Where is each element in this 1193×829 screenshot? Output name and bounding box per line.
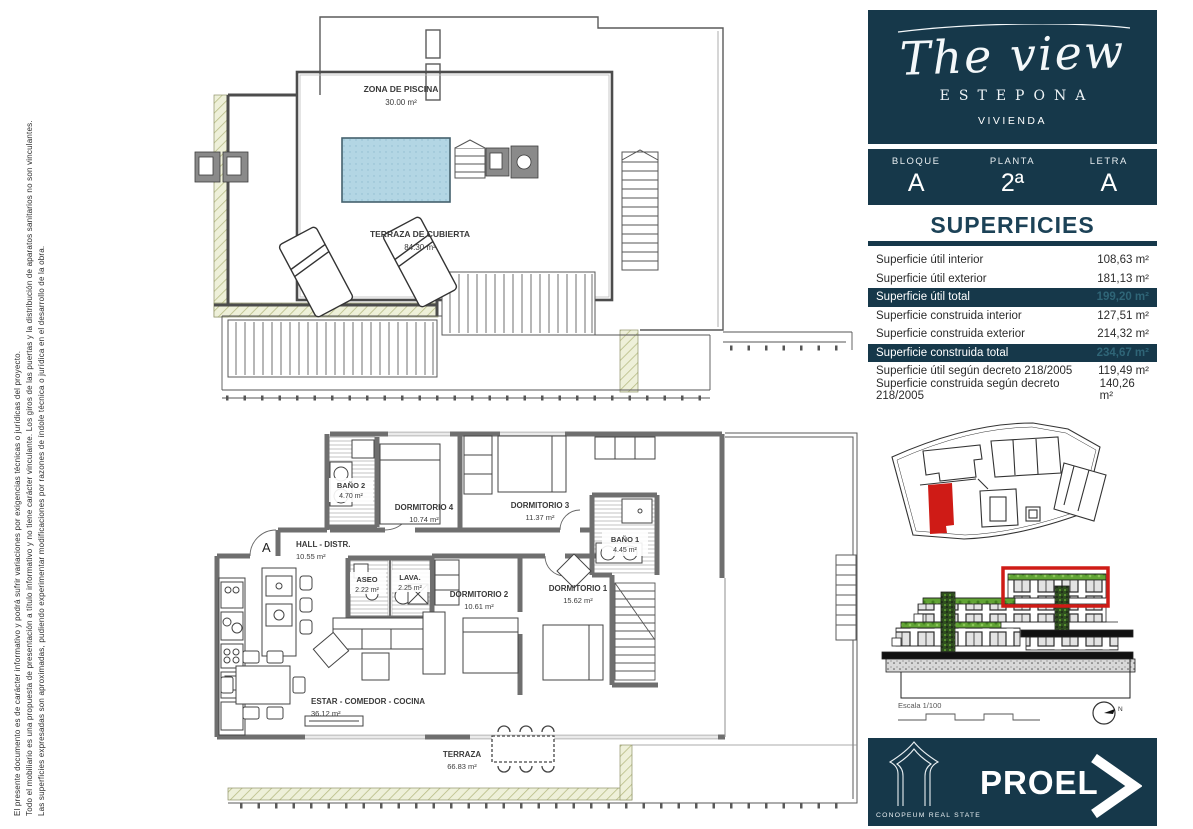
room-area: 10.61 m² <box>464 602 494 611</box>
field-letra: LETRA A <box>1061 149 1157 205</box>
field-value: A <box>868 169 964 198</box>
table-row-total: Superficie construida total 234,67 m² <box>868 344 1157 363</box>
room-label: BAÑO 2 <box>337 481 365 490</box>
room-area: 36.12 m² <box>311 709 341 718</box>
row-label: Superficie útil exterior <box>876 273 987 285</box>
table-row: Superficie útil interior 108,63 m² <box>868 251 1157 270</box>
superficies-rule <box>868 241 1157 246</box>
row-label: Superficie construida interior <box>876 310 1022 322</box>
room-label: ZONA DE PISCINA <box>364 84 439 94</box>
room-area: 15.62 m² <box>563 596 593 605</box>
info-sidebar: The view ESTEPONA VIVIENDA BLOQUE A PLAN… <box>868 0 1157 829</box>
scale-label: Escala 1/100 <box>898 701 941 710</box>
row-label: Superficie construida total <box>876 347 1008 359</box>
roof-terrace-plan: ZONA DE PISCINA 30.00 m² TERRAZA DE CUBI… <box>185 12 855 422</box>
room-area: 4.45 m² <box>613 547 637 554</box>
unit-fields: BLOQUE A PLANTA 2ª LETRA A <box>868 149 1157 205</box>
row-value: 214,32 m² <box>1097 328 1149 340</box>
row-value: 119,49 m² <box>1098 365 1149 377</box>
room-label: ESTAR - COMEDOR - COCINA <box>311 697 425 706</box>
room-label: TERRAZA <box>443 750 481 759</box>
table-row: Superficie construida interior 127,51 m² <box>868 307 1157 326</box>
field-planta: PLANTA 2ª <box>964 149 1060 205</box>
row-value: 199,20 m² <box>1097 291 1149 303</box>
room-label: TERRAZA DE CUBIERTA <box>370 229 470 239</box>
brand-header: The view ESTEPONA VIVIENDA <box>868 10 1157 144</box>
field-value: A <box>1061 169 1157 198</box>
room-area: 11.37 m² <box>525 513 555 522</box>
room-area: 84.30 m² <box>404 243 436 252</box>
room-area: 66.83 m² <box>447 762 477 771</box>
row-value: 127,51 m² <box>1097 310 1149 322</box>
row-value: 108,63 m² <box>1097 254 1149 266</box>
row-value: 234,67 m² <box>1097 347 1149 359</box>
row-label: Superficie útil total <box>876 291 970 303</box>
terrace-dining-set <box>492 726 554 772</box>
building-elevation: Escala 1/100 N <box>868 558 1157 733</box>
row-value: 181,13 m² <box>1097 273 1149 285</box>
agency-logo-block: PROEL CONOPEUM REAL STATE <box>868 738 1157 826</box>
room-area: 2.25 m² <box>398 585 422 592</box>
room-area: 4.70 m² <box>339 493 363 500</box>
floorplan-sheet: El presente documento es de carácter inf… <box>0 0 1193 829</box>
room-area: 2.22 m² <box>355 587 379 594</box>
swimming-pool <box>342 138 450 202</box>
project-title: The view <box>867 23 1158 87</box>
disclaimer-line: Las superficies expresadas son aproximad… <box>36 24 48 816</box>
brand-subtitle: CONOPEUM REAL STATE <box>876 812 981 819</box>
field-bloque: BLOQUE A <box>868 149 964 205</box>
row-label: Superficie construida exterior <box>876 328 1025 340</box>
room-area: 10.55 m² <box>296 552 326 561</box>
field-value: 2ª <box>964 169 1060 198</box>
table-row: Superficie construida exterior 214,32 m² <box>868 325 1157 344</box>
field-label: PLANTA <box>964 156 1060 167</box>
room-label: HALL - DISTR. <box>296 540 351 549</box>
disclaimer-line: El presente documento es de carácter inf… <box>12 24 24 816</box>
room-label: DORMITORIO 2 <box>450 590 509 599</box>
svg-text:N: N <box>1118 706 1123 713</box>
roof-stairs <box>622 150 658 270</box>
superficies-table: Superficie útil interior 108,63 m² Super… <box>868 251 1157 399</box>
interior-stairs <box>615 583 655 680</box>
room-label: DORMITORIO 3 <box>511 501 570 510</box>
disclaimer-line: Todo el mobiliario es una propuesta de p… <box>24 24 36 816</box>
room-area: 10.74 m² <box>409 515 439 524</box>
row-label: Superficie construida según decreto 218/… <box>876 378 1100 402</box>
row-value: 140,26 m² <box>1100 378 1149 402</box>
field-label: LETRA <box>1061 156 1157 167</box>
site-plan <box>868 415 1157 563</box>
row-label: Superficie útil según decreto 218/2005 <box>876 365 1072 377</box>
legal-disclaimer: El presente documento es de carácter inf… <box>12 24 48 816</box>
room-label: DORMITORIO 1 <box>549 584 608 593</box>
project-city: ESTEPONA <box>868 88 1157 104</box>
kitchen <box>219 568 312 735</box>
scale-bar <box>898 714 1040 720</box>
apartment-plan: BAÑO 2 4.70 m² DORMITORIO 4 10.74 m² DOR… <box>195 428 860 828</box>
room-label: BAÑO 1 <box>611 535 639 544</box>
superficies-title: SUPERFICIES <box>868 212 1157 239</box>
table-row-total: Superficie útil total 199,20 m² <box>868 288 1157 307</box>
compass-icon: N <box>1093 702 1123 724</box>
table-row: Superficie construida según decreto 218/… <box>868 381 1157 400</box>
room-label: LAVA. <box>399 573 420 582</box>
pool-steps <box>455 140 485 178</box>
table-row: Superficie útil exterior 181,13 m² <box>868 270 1157 289</box>
row-label: Superficie útil interior <box>876 254 983 266</box>
room-label: DORMITORIO 4 <box>395 503 454 512</box>
dwelling-label: VIVIENDA <box>868 115 1157 127</box>
entrance-letter: A <box>262 540 271 555</box>
brand-name: PROEL <box>980 764 1099 802</box>
chevron-arrow-icon <box>1090 754 1142 818</box>
field-label: BLOQUE <box>868 156 964 167</box>
room-label: ASEO <box>356 575 377 584</box>
room-area: 30.00 m² <box>385 98 417 107</box>
